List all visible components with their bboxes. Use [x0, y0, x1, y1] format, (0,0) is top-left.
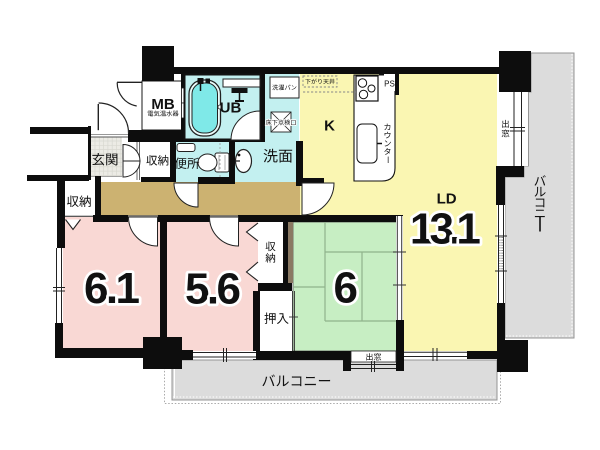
- svg-text:UB: UB: [220, 100, 242, 117]
- svg-text:6.1: 6.1: [84, 264, 140, 313]
- svg-text:5.6: 5.6: [185, 265, 241, 314]
- svg-text:K: K: [324, 118, 335, 135]
- svg-text:PS: PS: [384, 80, 395, 89]
- svg-text:6: 6: [333, 264, 357, 313]
- svg-text:MB: MB: [151, 96, 174, 113]
- svg-text:13.1: 13.1: [410, 204, 481, 253]
